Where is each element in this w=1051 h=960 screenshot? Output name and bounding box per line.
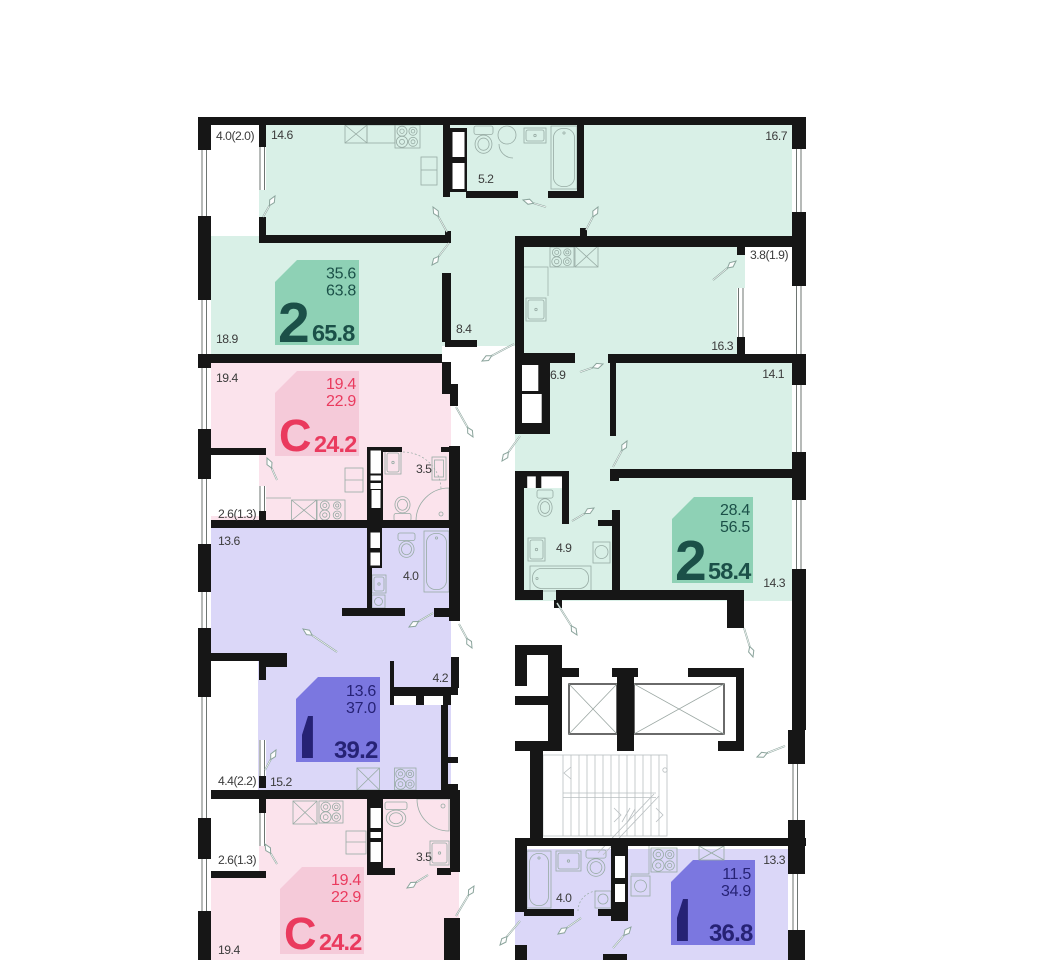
svg-text:3.5: 3.5 (416, 462, 432, 476)
svg-text:14.3: 14.3 (763, 576, 785, 590)
svg-text:2.6(1.3): 2.6(1.3) (218, 507, 256, 521)
svg-text:2.6(1.3): 2.6(1.3) (218, 853, 256, 867)
svg-text:24.2: 24.2 (319, 929, 362, 955)
svg-text:35.6: 35.6 (326, 266, 356, 283)
svg-text:16.3: 16.3 (711, 339, 733, 353)
svg-text:22.9: 22.9 (331, 889, 361, 906)
svg-text:11.5: 11.5 (722, 866, 751, 883)
svg-text:37.0: 37.0 (346, 700, 376, 717)
svg-text:6.9: 6.9 (550, 368, 566, 382)
svg-text:4.4(2.2): 4.4(2.2) (218, 774, 256, 788)
svg-text:65.8: 65.8 (312, 320, 355, 346)
svg-text:4.9: 4.9 (556, 541, 572, 555)
svg-text:14.1: 14.1 (762, 367, 784, 381)
svg-text:19.4: 19.4 (331, 872, 361, 889)
svg-text:4.0: 4.0 (403, 569, 419, 583)
svg-text:18.9: 18.9 (216, 332, 238, 346)
svg-text:34.9: 34.9 (721, 883, 751, 900)
svg-text:19.4: 19.4 (216, 371, 238, 385)
svg-text:2: 2 (278, 291, 310, 355)
svg-text:36.8: 36.8 (709, 920, 753, 947)
svg-text:22.9: 22.9 (326, 393, 356, 410)
svg-text:2: 2 (675, 529, 707, 593)
svg-text:3.5: 3.5 (416, 850, 432, 864)
svg-text:8.4: 8.4 (456, 322, 472, 336)
svg-text:28.4: 28.4 (720, 502, 750, 519)
svg-text:4.2: 4.2 (433, 671, 449, 685)
svg-text:4.0: 4.0 (556, 891, 572, 905)
svg-text:С: С (279, 410, 312, 461)
svg-text:19.4: 19.4 (218, 943, 240, 957)
svg-text:63.8: 63.8 (326, 283, 356, 300)
svg-text:16.7: 16.7 (765, 129, 787, 143)
svg-text:56.5: 56.5 (720, 519, 750, 536)
svg-text:15.2: 15.2 (270, 775, 292, 789)
svg-text:3.8(1.9): 3.8(1.9) (750, 248, 788, 262)
svg-text:13.6: 13.6 (346, 683, 376, 700)
svg-text:14.6: 14.6 (271, 128, 293, 142)
svg-text:58.4: 58.4 (708, 558, 751, 584)
svg-text:19.4: 19.4 (326, 376, 356, 393)
svg-text:13.3: 13.3 (763, 853, 785, 867)
svg-text:24.2: 24.2 (314, 431, 357, 457)
svg-text:4.0(2.0): 4.0(2.0) (216, 129, 254, 143)
svg-text:13.6: 13.6 (218, 534, 240, 548)
svg-text:39.2: 39.2 (334, 737, 378, 764)
svg-text:С: С (284, 908, 317, 959)
svg-text:5.2: 5.2 (478, 172, 494, 186)
